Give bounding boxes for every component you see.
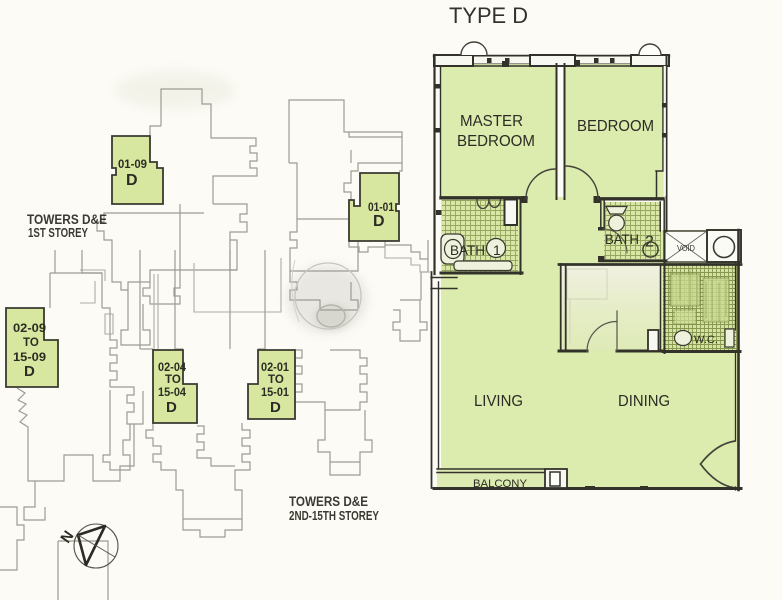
- svg-text:01-01: 01-01: [368, 200, 394, 214]
- svg-text:15-01: 15-01: [261, 387, 290, 399]
- svg-text:TO: TO: [23, 337, 39, 349]
- svg-text:D: D: [270, 399, 281, 416]
- svg-text:02-09: 02-09: [13, 323, 46, 335]
- svg-text:BEDROOM: BEDROOM: [457, 133, 535, 150]
- svg-text:01-09: 01-09: [118, 157, 147, 171]
- svg-text:02-01: 02-01: [261, 362, 290, 374]
- svg-text:15-04: 15-04: [158, 387, 187, 399]
- svg-text:MASTER: MASTER: [460, 113, 523, 130]
- svg-text:TO: TO: [165, 374, 181, 386]
- svg-text:TOWERS D&E: TOWERS D&E: [289, 494, 368, 509]
- svg-text:TO: TO: [268, 374, 284, 386]
- svg-text:D: D: [126, 172, 138, 189]
- svg-text:DINING: DINING: [618, 393, 670, 410]
- svg-text:VOID: VOID: [677, 244, 695, 253]
- svg-text:TYPE D: TYPE D: [449, 3, 528, 28]
- svg-text:D: D: [24, 363, 35, 380]
- svg-text:TOWERS D&E: TOWERS D&E: [27, 212, 107, 227]
- svg-text:02-04: 02-04: [158, 362, 187, 374]
- svg-text:BEDROOM: BEDROOM: [577, 118, 654, 135]
- svg-text:BATH: BATH: [605, 232, 639, 247]
- svg-text:1: 1: [493, 242, 501, 258]
- svg-text:2ND-15TH STOREY: 2ND-15TH STOREY: [289, 509, 380, 523]
- svg-text:BATH: BATH: [450, 242, 485, 258]
- svg-text:LIVING: LIVING: [474, 393, 523, 410]
- svg-text:BALCONY: BALCONY: [473, 478, 528, 490]
- svg-text:D: D: [373, 213, 385, 230]
- svg-text:D: D: [166, 399, 177, 416]
- svg-text:2: 2: [645, 234, 654, 251]
- svg-text:W.C.: W.C.: [694, 334, 718, 346]
- svg-text:1ST STOREY: 1ST STOREY: [28, 226, 89, 240]
